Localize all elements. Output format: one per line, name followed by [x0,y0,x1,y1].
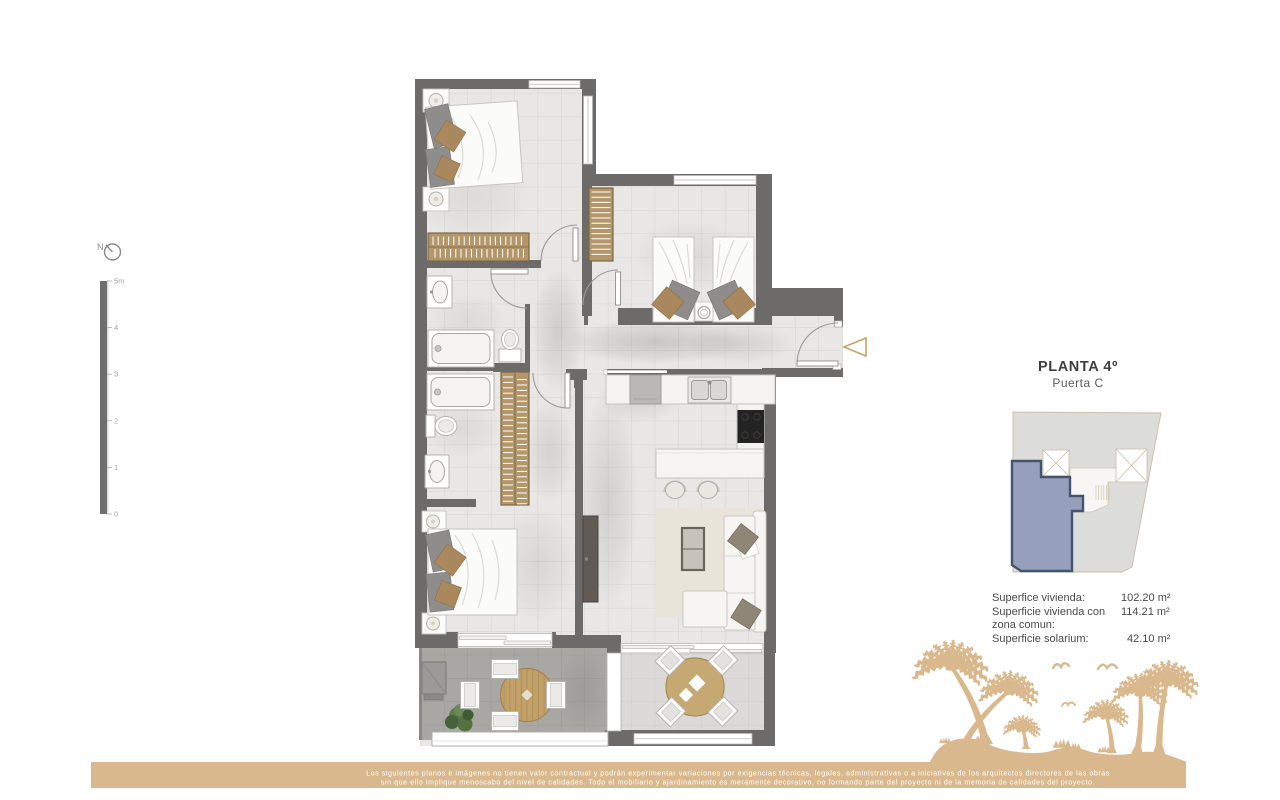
svg-text:5m: 5m [114,277,124,286]
svg-text:102.20 m²: 102.20 m² [1121,592,1171,604]
svg-text:Los siguientes planos e imágen: Los siguientes planos e imágenes no tien… [366,770,1110,778]
svg-text:0: 0 [114,510,118,519]
svg-text:114.21 m²: 114.21 m² [1121,606,1170,618]
svg-text:N: N [97,242,104,252]
svg-text:3: 3 [114,370,118,379]
svg-text:Superficie vivienda con: Superficie vivienda con [992,606,1105,618]
svg-text:2: 2 [114,416,118,425]
svg-text:42.10 m²: 42.10 m² [1127,633,1171,645]
svg-text:zona comun:: zona comun: [992,619,1055,631]
svg-text:Superfice vivienda:: Superfice vivienda: [992,592,1085,604]
svg-text:4: 4 [114,323,118,332]
svg-text:Puerta C: Puerta C [1052,376,1103,390]
svg-text:1: 1 [114,463,118,472]
svg-text:sin que ello implique menoscab: sin que ello implique menoscabo del nive… [381,779,1095,787]
svg-text:PLANTA 4º: PLANTA 4º [1038,359,1118,375]
svg-text:Superficie solarium:: Superficie solarium: [992,633,1089,645]
